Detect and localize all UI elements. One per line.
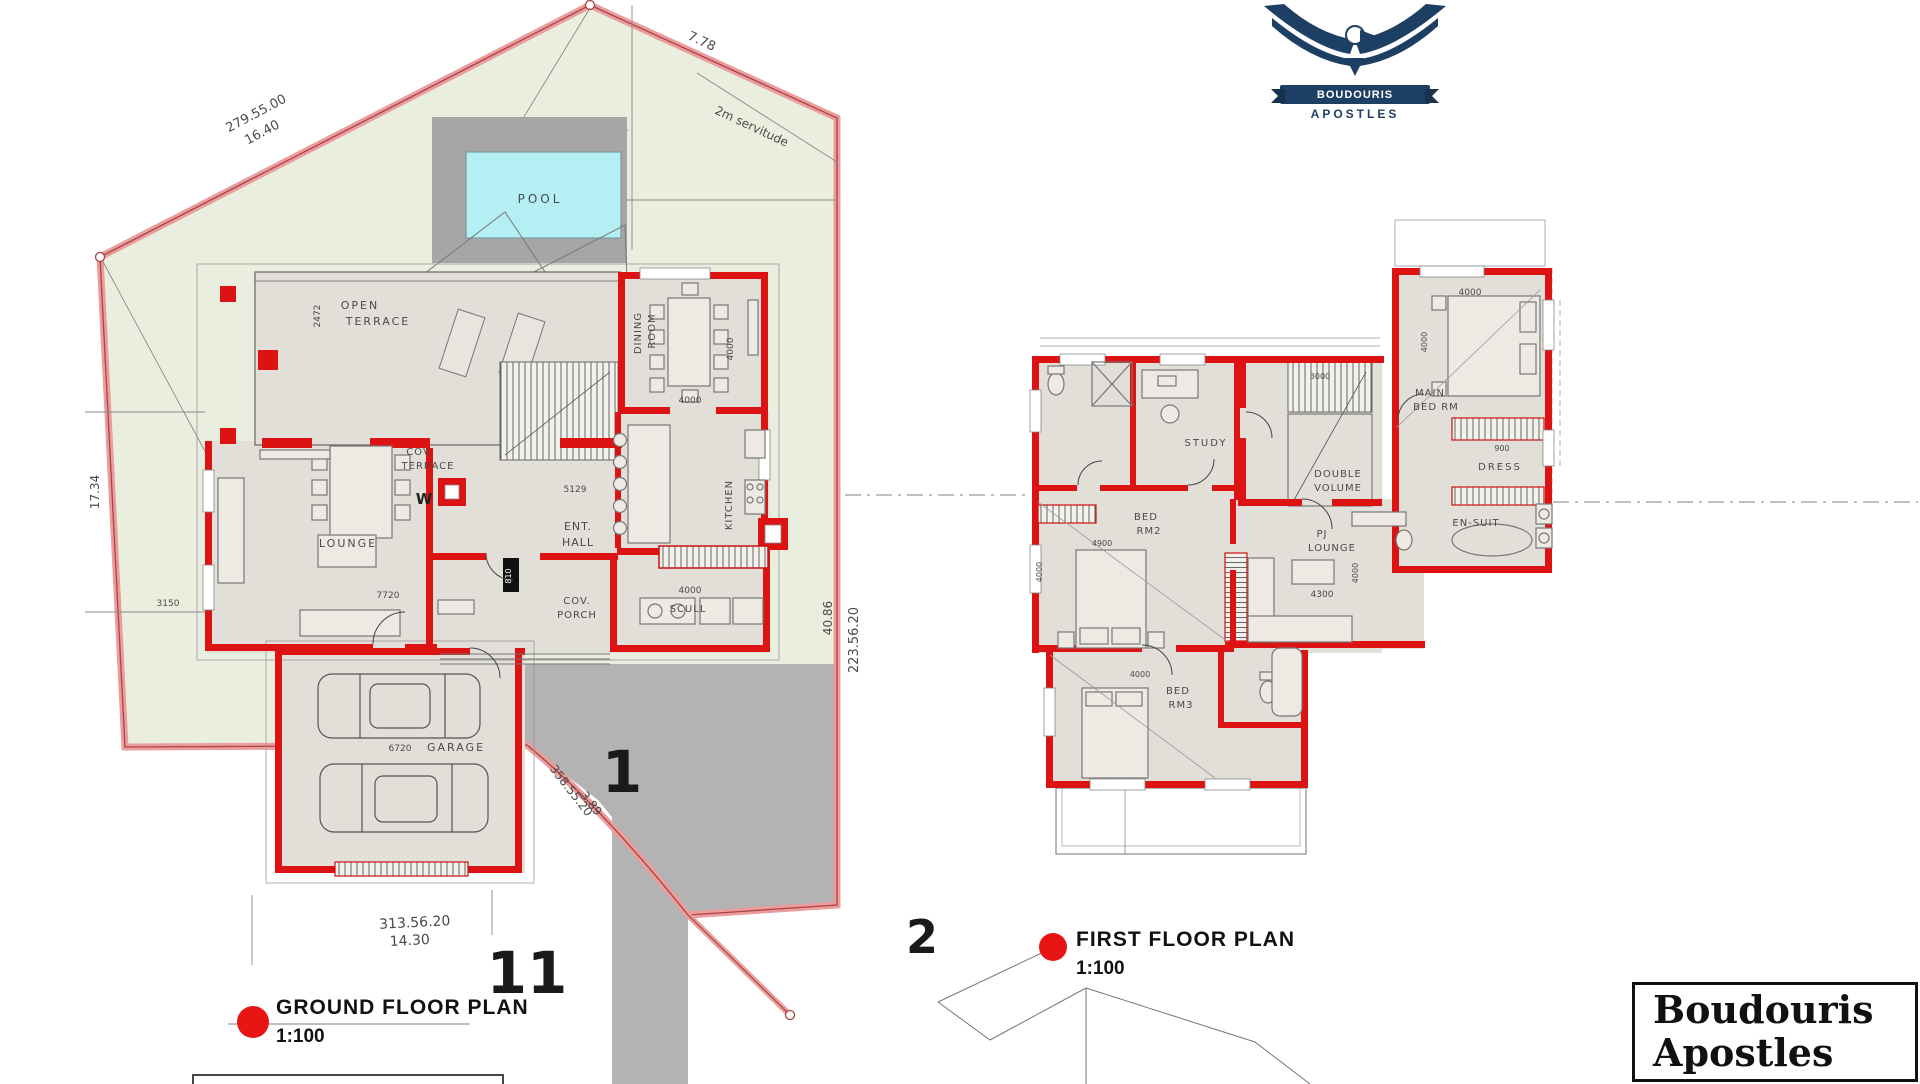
dim-40-86: 40.86: [821, 601, 835, 635]
first-floor-plan: [1030, 220, 1560, 854]
first-plan-title: FIRST FLOOR PLAN: [1076, 928, 1295, 952]
logo-subtitle: APOSTLES: [1256, 107, 1454, 121]
room-double-volume-1: DOUBLE: [1314, 469, 1362, 480]
dim-2472: 2472: [313, 305, 323, 328]
room-garage: GARAGE: [427, 741, 485, 754]
eagle-icon: [1256, 2, 1454, 78]
dim-4900: 4900: [1092, 539, 1112, 548]
room-open-terrace-1: OPEN: [341, 299, 379, 312]
room-kitchen: KITCHEN: [724, 480, 735, 530]
boundary-peg-street: [786, 1011, 795, 1020]
lot-number-2: 2: [906, 910, 938, 964]
room-pj-2: LOUNGE: [1308, 543, 1356, 554]
room-ent-hall-2: HALL: [562, 536, 594, 549]
room-ensuit: EN-SUIT: [1452, 518, 1499, 529]
dim-3150: 3150: [157, 599, 180, 609]
dim-4300: 4300: [1311, 590, 1334, 600]
title-block-line1: Boudouris: [1653, 989, 1915, 1032]
room-open-terrace-2: TERRACE: [345, 315, 410, 328]
dim-4000-bed3: 4000: [1130, 670, 1150, 679]
first-plan-caption: FIRST FLOOR PLAN 1:100: [1076, 928, 1295, 980]
plan-sheet: 279.55.0016.407.782m servitude17.34313.5…: [0, 0, 1920, 1084]
room-ent-hall-1: ENT.: [564, 520, 592, 533]
room-cov-terrace-2: TERRACE: [401, 461, 455, 472]
dim-900: 900: [1494, 444, 1509, 453]
room-cov-terrace-1: COV.: [406, 447, 433, 458]
dim-17-34: 17.34: [88, 475, 102, 509]
ground-plan-caption: GROUND FLOOR PLAN 1:100: [276, 996, 529, 1048]
balcony: [1056, 788, 1306, 854]
door-tag-810: 810: [504, 568, 513, 583]
room-study: STUDY: [1184, 438, 1227, 449]
ground-plan-title: GROUND FLOOR PLAN: [276, 996, 529, 1020]
room-bed2-1: BED: [1134, 512, 1158, 523]
dim-4000-pj-v: 4000: [1351, 563, 1360, 583]
first-plan-dot: [1039, 933, 1067, 961]
room-lounge: LOUNGE: [319, 537, 377, 550]
ground-plan-dot: [237, 1006, 269, 1038]
floor-plan-drawing: 279.55.0016.407.782m servitude17.34313.5…: [0, 0, 1920, 1084]
title-block-line2: Apostles: [1653, 1032, 1915, 1075]
room-main-bed-1: MAIN: [1415, 388, 1445, 399]
room-bed3-1: BED: [1166, 686, 1190, 697]
dim-4000-dining-h: 4000: [679, 396, 702, 406]
meter-w: W: [416, 490, 433, 508]
room-dress: DRESS: [1478, 462, 1522, 473]
dim-4000-mainbed: 4000: [1459, 288, 1482, 298]
bottom-partial-box: [192, 1074, 504, 1084]
dim-4000-scull: 4000: [679, 586, 702, 596]
scull-screen: [659, 546, 768, 568]
ground-plan-scale: 1:100: [276, 1026, 529, 1048]
room-double-volume-2: VOLUME: [1314, 483, 1362, 494]
dim-14-30: 14.30: [389, 932, 430, 950]
bottom-sketch-lines: [938, 988, 1310, 1084]
first-plan-scale: 1:100: [1076, 958, 1295, 980]
dim-6720: 6720: [389, 744, 412, 754]
dim-4000-bed2-v: 4000: [1035, 562, 1044, 582]
dim-7720: 7720: [377, 591, 400, 601]
room-cov-porch-2: PORCH: [557, 610, 597, 621]
room-dining-1: DINING: [633, 312, 644, 354]
room-pj-1: PJ: [1317, 529, 1328, 540]
room-pool: POOL: [518, 192, 563, 206]
lot-number-1: 1: [602, 738, 642, 806]
room-main-bed-2: BED RM: [1413, 402, 1459, 413]
room-scull: SCULL: [670, 604, 707, 615]
dim-313-56-20: 313.56.20: [379, 913, 451, 933]
title-block: Boudouris Apostles: [1632, 982, 1918, 1082]
room-bed3-2: RM3: [1169, 700, 1194, 711]
dim-3000: 3000: [1310, 372, 1330, 381]
room-cov-porch-1: COV.: [563, 596, 590, 607]
room-dining-2: ROOM: [647, 313, 658, 348]
dim-4000-dining-v: 4000: [726, 337, 736, 360]
boundary-peg-left: [96, 253, 105, 262]
dim-5129: 5129: [564, 485, 587, 495]
first-caption-leader: [938, 950, 1048, 1002]
company-logo: BOUDOURIS APOSTLES: [1256, 2, 1454, 121]
room-bed2-2: RM2: [1137, 526, 1162, 537]
garage-door: [335, 862, 468, 876]
logo-banner: BOUDOURIS: [1280, 85, 1430, 104]
dim-4000-mainbed-v: 4000: [1420, 332, 1429, 352]
dim-223-56-20: 223.56.20: [847, 607, 862, 673]
